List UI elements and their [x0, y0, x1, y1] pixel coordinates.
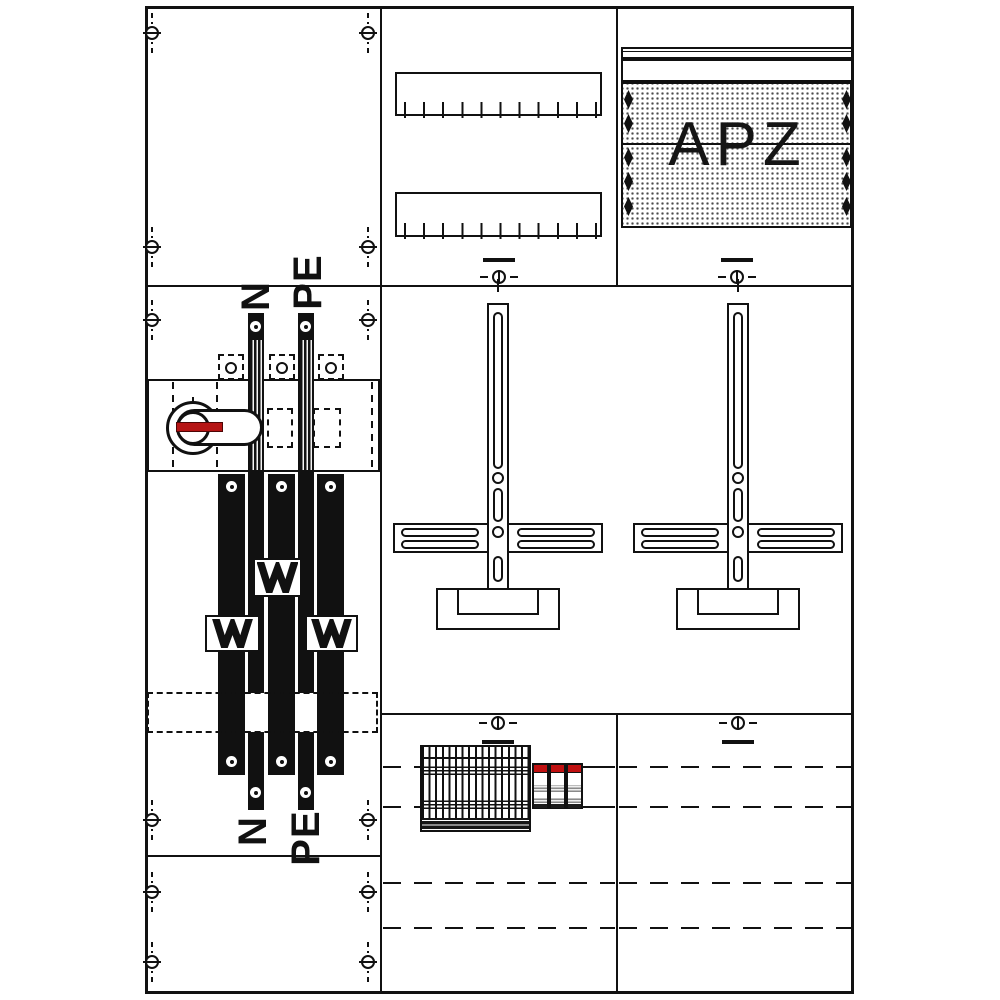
busbar-label-pe-top: PE [278, 247, 338, 317]
screw-icon [142, 300, 162, 340]
terminal-row [422, 766, 529, 775]
apz-strip-line [623, 51, 851, 52]
switch-terminal-mark [267, 408, 293, 448]
din-rail-ticks [404, 223, 598, 239]
wiring-guide-dashed [383, 927, 615, 929]
screw-icon [142, 13, 162, 53]
busbar-bolt-icon [226, 756, 237, 767]
terminal-row-line [422, 757, 529, 759]
busbar-texture [250, 340, 262, 470]
busbar-bolt-icon [276, 481, 287, 492]
wiring-guide-dashed [619, 766, 852, 768]
breaker-base [568, 804, 581, 808]
rail-hole-icon [492, 472, 504, 484]
din-rail-ticks [404, 102, 598, 118]
arm-slot [517, 528, 595, 537]
apz-top-strip [621, 47, 853, 59]
connection-zone-dashed [147, 692, 378, 733]
pe-busbar-lower [298, 732, 314, 810]
arm-slot [757, 540, 835, 549]
divider-vertical-right-top [616, 6, 618, 287]
breaker-label-area [568, 785, 581, 792]
arm-slot [641, 540, 719, 549]
busbar-holder [305, 615, 358, 652]
rail-slot-short [493, 488, 503, 522]
divider-horizontal-left-bottom [145, 855, 382, 857]
apz-label: APZ [640, 98, 835, 190]
busbar-label-n-top: N [236, 276, 276, 316]
screw-icon [358, 300, 378, 340]
cross-foot-inner [697, 588, 779, 615]
rail-hole-icon [732, 472, 744, 484]
busbar-bolt-icon [300, 321, 311, 332]
busbar-bolt-icon [300, 787, 311, 798]
busbar-texture [300, 340, 312, 470]
mount-hole-icon [225, 362, 237, 374]
busbar-bolt-icon [276, 756, 287, 767]
apz-cover-strip [621, 59, 853, 82]
n-busbar-lower [248, 732, 264, 810]
busbar-bolt-icon [250, 321, 261, 332]
fixing-point-icon [476, 258, 522, 292]
circuit-breaker [566, 763, 583, 809]
busbar-bolt-icon [325, 481, 336, 492]
busbar-bolt-icon [250, 787, 261, 798]
position-tick [737, 279, 739, 292]
arm-slot [757, 528, 835, 537]
arm-slot [401, 540, 479, 549]
screw-icon [142, 872, 162, 912]
rail-slot-lower [733, 556, 743, 582]
breaker-red-cap [534, 765, 547, 773]
terminal-base-band [422, 818, 529, 830]
switch-handle-red-bar [176, 422, 223, 432]
breaker-base [534, 804, 547, 808]
rail-slot-short [733, 488, 743, 522]
cross-center-hole-icon [732, 526, 744, 538]
w-holder-icon [309, 619, 354, 648]
switch-terminal-mark [313, 408, 341, 448]
w-holder-icon [209, 619, 256, 648]
wiring-guide-dashed [619, 806, 852, 808]
arm-slot [517, 540, 595, 549]
busbar-holder [205, 615, 260, 652]
busbar-bolt-icon [325, 756, 336, 767]
wiring-guide-dashed [619, 882, 852, 884]
arm-slot [401, 528, 479, 537]
screw-icon [142, 227, 162, 267]
cross-center-hole-icon [492, 526, 504, 538]
wiring-guide-dashed [383, 882, 615, 884]
mount-hole-icon [276, 362, 288, 374]
breaker-label-area [568, 798, 581, 803]
fixing-point-icon [715, 716, 761, 744]
breaker-red-cap [568, 765, 581, 773]
rail-slot-long [733, 312, 743, 469]
breaker-label-area [551, 785, 564, 792]
screw-icon [358, 872, 378, 912]
breaker-rail-line [583, 806, 608, 808]
divider-horizontal-middle [381, 713, 854, 715]
screw-icon [358, 942, 378, 982]
screw-icon [358, 227, 378, 267]
w-holder-icon [257, 562, 298, 593]
rail-slot-long [493, 312, 503, 469]
terminal-row [422, 799, 529, 809]
screw-icon [142, 800, 162, 840]
busbar-label-pe-bottom: PE [276, 803, 336, 873]
divider-vertical-left [380, 6, 382, 994]
busbar-bolt-icon [226, 481, 237, 492]
breaker-red-cap [551, 765, 564, 773]
screw-icon [358, 13, 378, 53]
rail-slot-lower [493, 556, 503, 582]
arm-slot [641, 528, 719, 537]
terminal-block [420, 745, 531, 832]
circuit-breaker [532, 763, 549, 809]
breaker-label-area [534, 798, 547, 803]
busbar-holder [253, 558, 302, 597]
fixing-point-icon [475, 716, 521, 744]
cross-foot-inner [457, 588, 539, 615]
breaker-label-area [551, 798, 564, 803]
position-tick [497, 279, 499, 292]
breaker-label-area [534, 785, 547, 792]
divider-vertical-right-bottom [616, 713, 618, 994]
meter-cabinet-layout-diagram: N PE [0, 0, 1000, 1000]
mount-hole-icon [325, 362, 337, 374]
screw-icon [358, 800, 378, 840]
breaker-rail-line [583, 766, 608, 768]
wiring-guide-dashed [619, 927, 852, 929]
switch-divider-dashed [371, 382, 373, 470]
busbar-label-n-bottom: N [233, 811, 273, 851]
breaker-base [551, 804, 564, 808]
circuit-breaker [549, 763, 566, 809]
screw-icon [142, 942, 162, 982]
